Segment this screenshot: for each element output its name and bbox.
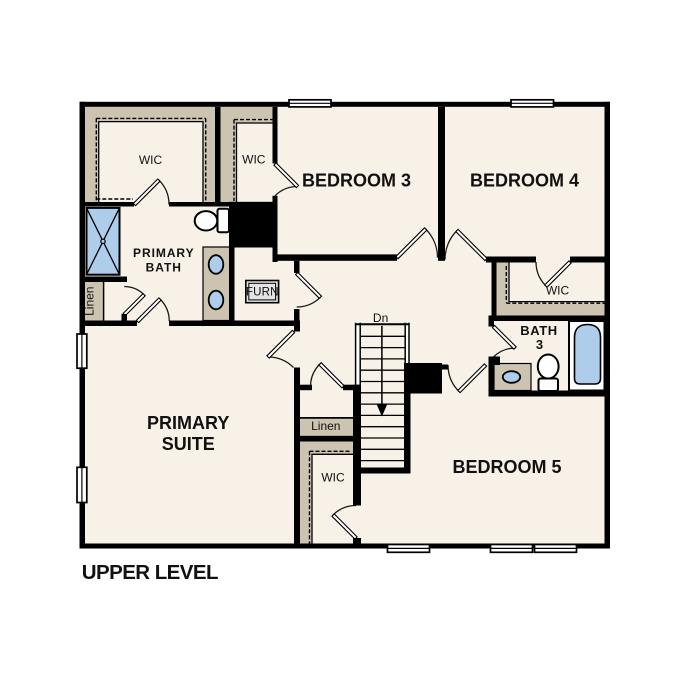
svg-text:WIC: WIC xyxy=(321,470,345,484)
svg-text:WIC: WIC xyxy=(546,284,570,298)
svg-text:UPPER LEVEL: UPPER LEVEL xyxy=(82,561,218,584)
svg-text:3: 3 xyxy=(536,337,543,352)
svg-text:BATH: BATH xyxy=(146,260,182,274)
svg-text:FURN: FURN xyxy=(246,286,279,298)
svg-text:PRIMARY: PRIMARY xyxy=(147,413,229,433)
svg-text:WIC: WIC xyxy=(242,153,266,167)
svg-text:SUITE: SUITE xyxy=(162,434,215,454)
svg-text:BEDROOM 3: BEDROOM 3 xyxy=(302,171,411,191)
svg-text:Dn: Dn xyxy=(373,311,388,325)
svg-text:Linen: Linen xyxy=(311,419,340,433)
svg-text:PRIMARY: PRIMARY xyxy=(133,246,195,260)
svg-text:Linen: Linen xyxy=(83,287,97,316)
svg-text:BATH: BATH xyxy=(520,323,558,338)
svg-text:BEDROOM 4: BEDROOM 4 xyxy=(470,171,579,191)
svg-text:BEDROOM 5: BEDROOM 5 xyxy=(452,457,561,477)
svg-text:WIC: WIC xyxy=(139,153,163,167)
